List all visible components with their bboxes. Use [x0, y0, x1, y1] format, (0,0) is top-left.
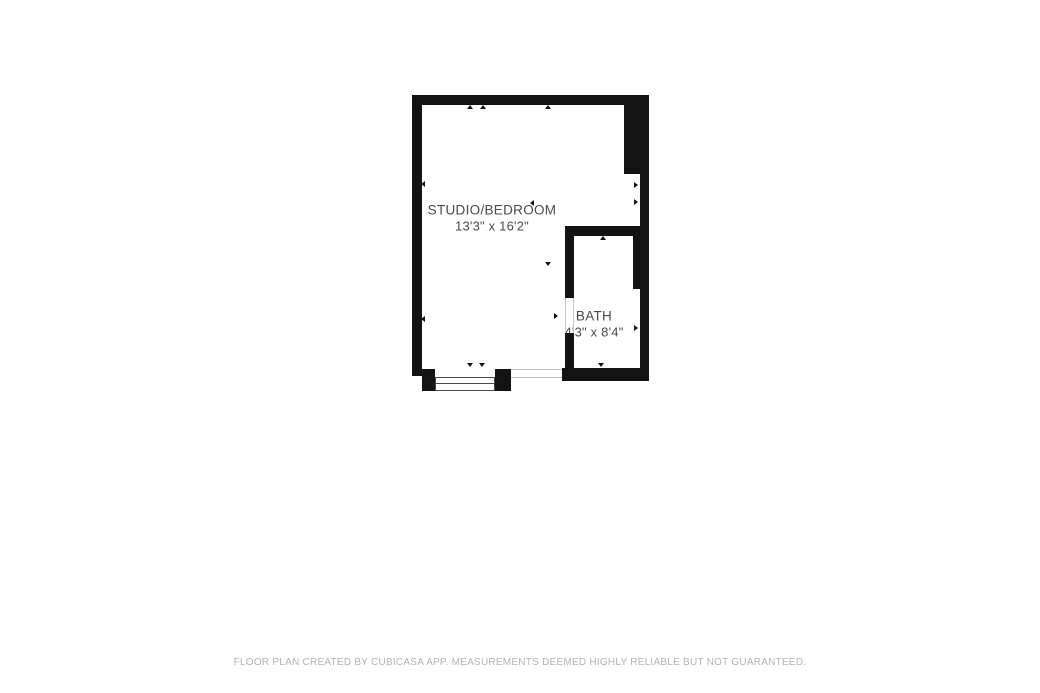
direction-marker-left — [421, 181, 425, 187]
room-name-studio: STUDIO/BEDROOM — [428, 203, 557, 218]
opening-line — [573, 298, 574, 333]
wall-segment — [562, 368, 649, 381]
direction-marker-right — [634, 199, 638, 205]
opening-line — [565, 298, 566, 333]
floor-plan: STUDIO/BEDROOM 13'3" x 16'2" BATH 4'3" x… — [0, 0, 1040, 693]
wall-segment — [565, 226, 574, 298]
wall-segment — [412, 95, 649, 105]
room-label-studio: STUDIO/BEDROOM 13'3" x 16'2" — [428, 203, 557, 234]
floor-plan-page: STUDIO/BEDROOM 13'3" x 16'2" BATH 4'3" x… — [0, 0, 1040, 693]
direction-marker-down — [467, 363, 473, 367]
direction-marker-up — [545, 105, 551, 109]
wall-segment — [633, 226, 642, 289]
direction-marker-left — [421, 316, 425, 322]
direction-marker-up — [467, 105, 473, 109]
window-pane-line — [436, 383, 494, 384]
direction-marker-up — [480, 105, 486, 109]
direction-marker-right — [554, 313, 558, 319]
room-dimensions-studio: 13'3" x 16'2" — [428, 219, 557, 234]
opening-line — [511, 369, 562, 370]
direction-marker-up — [600, 236, 606, 240]
opening-line — [511, 377, 562, 378]
wall-segment — [495, 369, 511, 391]
direction-marker-down — [479, 363, 485, 367]
direction-marker-down — [598, 363, 604, 367]
window — [435, 377, 495, 391]
wall-segment — [412, 95, 422, 376]
direction-marker-right — [634, 325, 638, 331]
direction-marker-down — [545, 262, 551, 266]
footer-disclaimer: FLOOR PLAN CREATED BY CUBICASA APP. MEAS… — [0, 657, 1040, 669]
direction-marker-left — [530, 200, 534, 206]
direction-marker-right — [634, 182, 638, 188]
wall-segment — [422, 369, 435, 391]
